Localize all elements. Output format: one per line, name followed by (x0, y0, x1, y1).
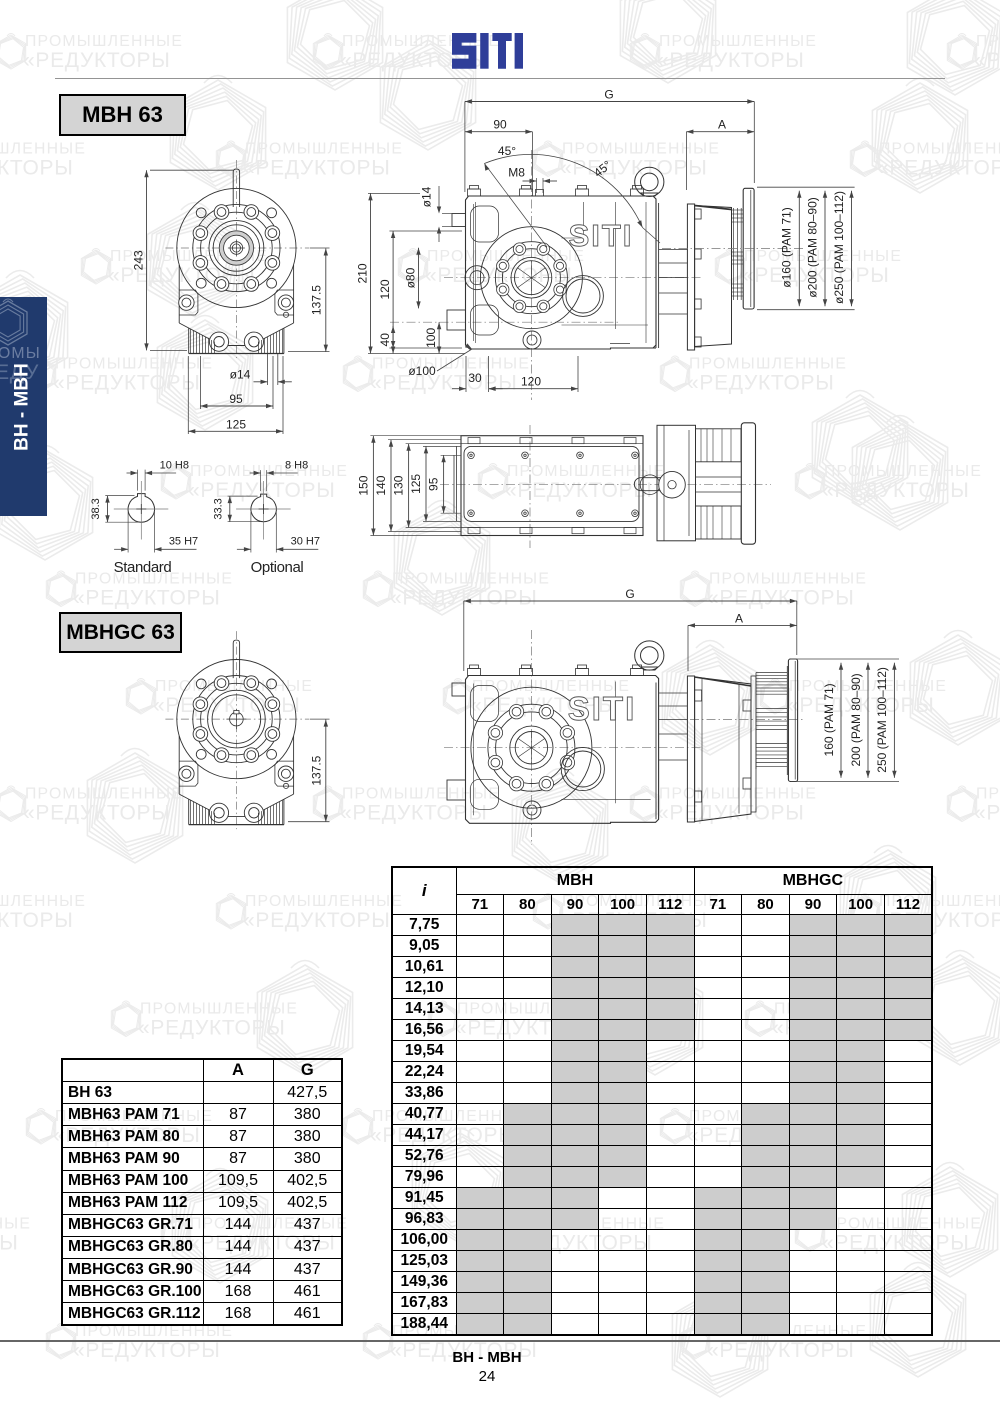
svg-text:100: 100 (424, 328, 438, 348)
svg-text:Optional: Optional (251, 559, 304, 576)
svg-text:«РЕДУКТОРЫ: «РЕДУКТОРЫ (23, 49, 171, 72)
svg-text:33.3: 33.3 (212, 498, 224, 519)
svg-text:38.3: 38.3 (90, 498, 102, 519)
svg-text:«РЕДУКТОРЫ: «РЕДУКТОРЫ (243, 909, 391, 932)
svg-text:ø100: ø100 (408, 364, 436, 378)
svg-text:G: G (625, 587, 634, 601)
svg-text:ПРОМЫШЛЕННЫЕ: ПРОМЫШЛЕННЫЕ (0, 1216, 31, 1233)
svg-text:200 (PAM 80–90): 200 (PAM 80–90) (849, 673, 863, 766)
svg-text:210: 210 (355, 263, 369, 283)
svg-text:SITI: SITI (568, 690, 637, 727)
svg-text:125: 125 (226, 417, 246, 431)
svg-text:«РЕДУКТОРЫ: «РЕДУКТОРЫ (73, 1339, 221, 1362)
svg-text:«РЕДУКТОРЫ: «РЕДУКТОРЫ (707, 1339, 855, 1362)
svg-text:40: 40 (378, 333, 392, 347)
svg-text:«РЕДУКТОРЫ: «РЕДУКТОРЫ (974, 802, 1000, 825)
svg-text:«РЕДУКТОРЫ: «РЕДУКТОРЫ (0, 1232, 19, 1255)
svg-text:137.5: 137.5 (309, 285, 323, 315)
svg-text:ø160 (PAM 71): ø160 (PAM 71) (780, 207, 794, 287)
svg-text:ПРОМЫШЛЕННЫЕ: ПРОМЫШЛЕННЫЕ (0, 893, 86, 910)
svg-text:30: 30 (468, 371, 482, 385)
svg-text:243: 243 (132, 250, 146, 270)
svg-text:10 H8: 10 H8 (160, 460, 189, 472)
svg-text:A: A (735, 611, 743, 625)
svg-text:35 H7: 35 H7 (169, 535, 198, 547)
svg-text:ПРОМЫШЛЕННЫЕ: ПРОМЫШЛЕННЫЕ (659, 33, 817, 50)
svg-text:ПРОМЫШЛЕННЫЕ: ПРОМЫШЛЕННЫЕ (976, 786, 1000, 803)
svg-text:«РЕДУКТОРЫ: «РЕДУКТОРЫ (0, 157, 74, 180)
svg-text:ПРОМЫШЛЕННЫЕ: ПРОМЫШЛЕННЫЕ (0, 141, 86, 158)
svg-text:30 H7: 30 H7 (291, 535, 320, 547)
svg-text:«РЕДУКТОРЫ: «РЕДУКТОРЫ (0, 909, 74, 932)
svg-text:8 H8: 8 H8 (285, 460, 308, 472)
svg-text:ø14: ø14 (230, 368, 251, 382)
svg-text:ø80: ø80 (403, 267, 417, 288)
svg-text:Standard: Standard (114, 559, 172, 576)
svg-text:250 (PAM 100–112): 250 (PAM 100–112) (875, 667, 889, 773)
svg-text:SITI: SITI (569, 218, 634, 253)
svg-text:ø14: ø14 (420, 186, 434, 207)
svg-text:137.5: 137.5 (309, 755, 323, 785)
svg-text:ПРОМЫШЛЕННЫЕ: ПРОМЫШЛЕННЫЕ (25, 33, 183, 50)
svg-text:120: 120 (521, 375, 541, 389)
svg-text:ø250 (PAM 100–112): ø250 (PAM 100–112) (832, 191, 846, 304)
svg-text:95: 95 (229, 392, 243, 406)
svg-text:160 (PAM 71): 160 (PAM 71) (822, 683, 836, 756)
svg-text:45°: 45° (591, 158, 614, 180)
svg-text:M8: M8 (508, 166, 525, 180)
svg-text:45°: 45° (498, 144, 516, 158)
svg-text:95: 95 (427, 477, 441, 491)
svg-text:ПРОМЫШЛЕННЫЕ: ПРОМЫШЛЕННЫЕ (245, 893, 403, 910)
svg-text:120: 120 (378, 279, 392, 299)
svg-text:ø200 (PAM 80–90): ø200 (PAM 80–90) (805, 197, 819, 298)
svg-text:G: G (604, 88, 613, 102)
svg-text:«РЕДУКТОРЫ: «РЕДУКТОРЫ (73, 587, 221, 610)
svg-text:90: 90 (493, 118, 507, 132)
svg-text:A: A (718, 118, 726, 132)
svg-text:ПРОМЫШЛЕННЫЕ: ПРОМЫШЛЕННЫЕ (879, 141, 1000, 158)
